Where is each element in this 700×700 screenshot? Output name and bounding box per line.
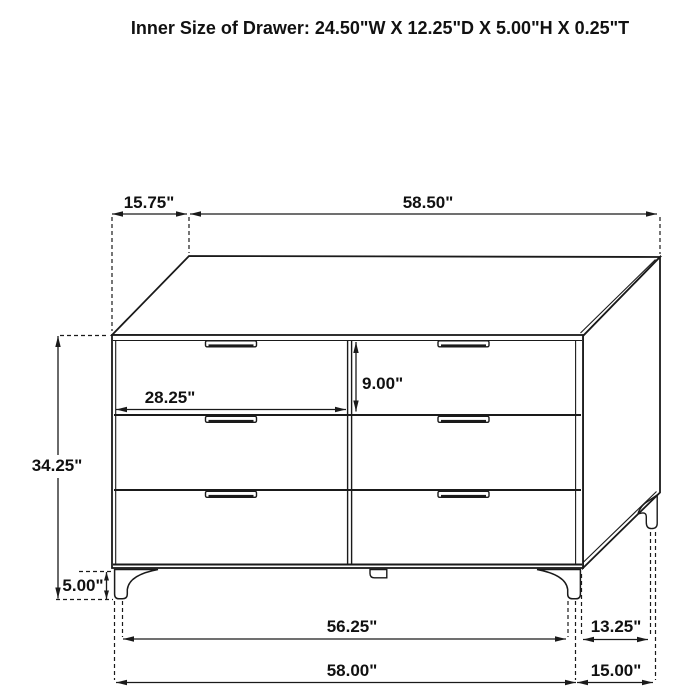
dim-label-base-inner-width: 56.25" xyxy=(327,617,378,636)
dim-label-base-inner-depth: 13.25" xyxy=(591,617,642,636)
dresser-drawing xyxy=(112,256,660,599)
dim-base-width: 58.00" xyxy=(115,601,577,685)
dim-leg-height: 5.00" xyxy=(56,572,113,600)
front-left-leg xyxy=(115,570,158,599)
dim-overall-height: 34.25" xyxy=(32,336,107,599)
dim-top-width: 58.50" xyxy=(190,193,660,254)
dim-label-leg-height: 5.00" xyxy=(62,576,103,595)
dim-label-top-width: 58.50" xyxy=(403,193,454,212)
dresser-dimension-diagram: Inner Size of Drawer: 24.50"W X 12.25"D … xyxy=(0,0,700,700)
dim-label-overall-height: 34.25" xyxy=(32,456,83,475)
dresser-top-face xyxy=(112,256,660,336)
dim-label-base-depth: 15.00" xyxy=(591,661,642,680)
front-right-leg xyxy=(537,570,580,599)
dim-label-base-width: 58.00" xyxy=(327,661,378,680)
diagram-page: Inner Size of Drawer: 24.50"W X 12.25"D … xyxy=(0,0,700,700)
dim-label-drawer-width: 28.25" xyxy=(145,388,196,407)
center-foot xyxy=(370,570,387,578)
page-title: Inner Size of Drawer: 24.50"W X 12.25"D … xyxy=(131,18,629,38)
dim-label-top-depth: 15.75" xyxy=(124,193,175,212)
dim-base-inner-width: 56.25" xyxy=(123,601,569,642)
dim-label-drawer-height: 9.00" xyxy=(362,374,403,393)
